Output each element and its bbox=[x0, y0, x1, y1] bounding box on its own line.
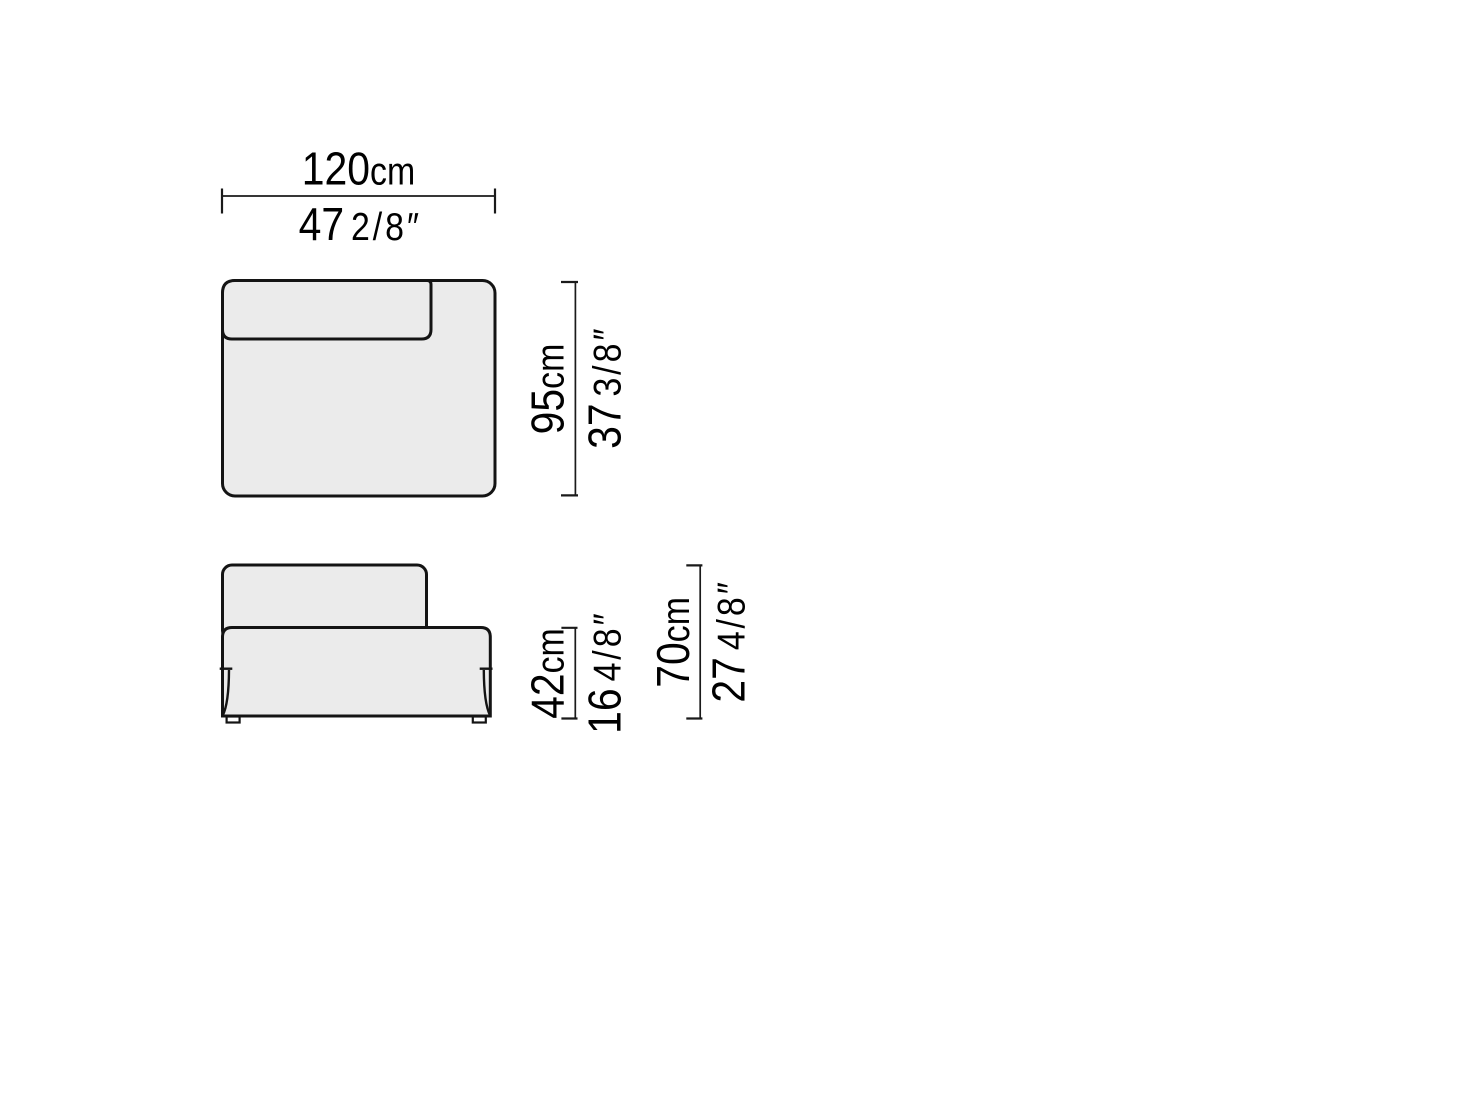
svg-text:42cm: 42cm bbox=[522, 628, 574, 719]
svg-text:95cm: 95cm bbox=[522, 344, 574, 435]
svg-text:16 4/8″: 16 4/8″ bbox=[579, 613, 631, 734]
svg-text:27 4/8″: 27 4/8″ bbox=[703, 582, 755, 703]
svg-text:47 2/8″: 47 2/8″ bbox=[299, 199, 420, 251]
svg-text:37 3/8″: 37 3/8″ bbox=[579, 328, 631, 449]
svg-text:120cm: 120cm bbox=[302, 143, 415, 195]
svg-text:70cm: 70cm bbox=[648, 597, 700, 688]
